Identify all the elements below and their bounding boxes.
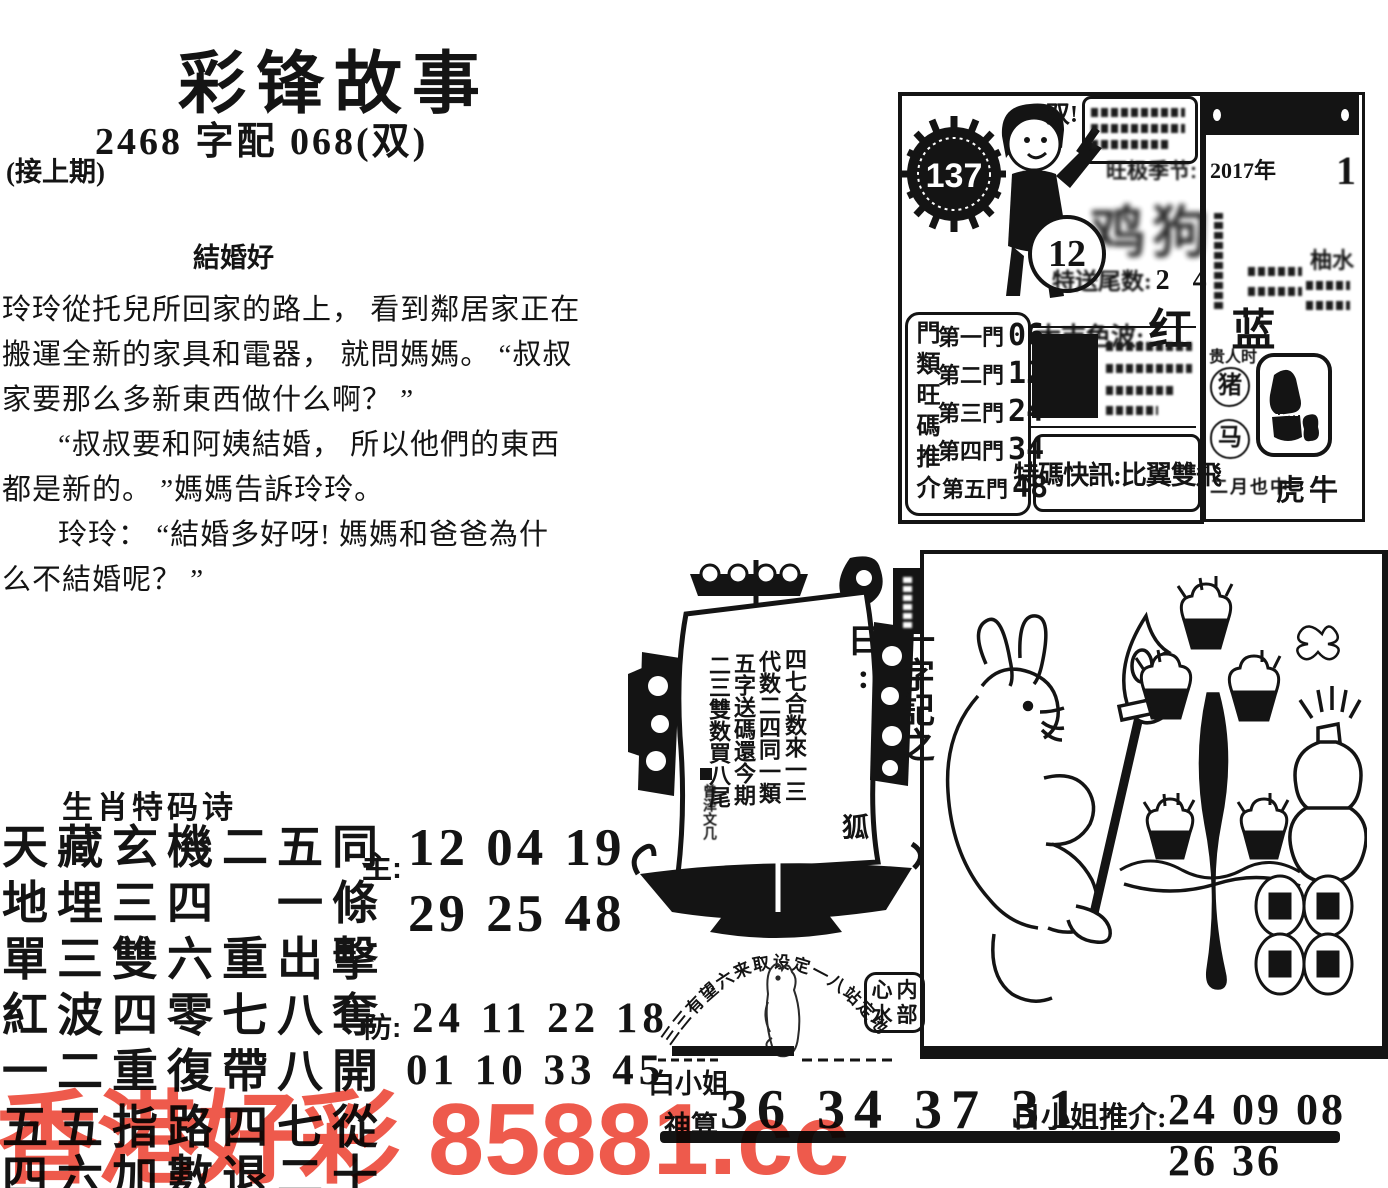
story-line: “叔叔要和阿姨結婚， 所以他們的東西 [58,423,560,468]
story-title: 結婚好 [193,236,274,275]
main-picks-label: 主: [362,843,402,887]
poem-line: 地埋三四 一條 [2,876,387,931]
season-zodiac: 鸡狗 [1090,188,1214,269]
gate-label: 第三門 [938,401,1004,426]
poem-line: 單三雙六重出擊 [2,932,387,987]
story-line: 都是新的。 ”媽媽告訴玲玲。 [2,468,384,513]
main-picks-row: 12 04 19 [408,818,626,878]
stamp-char: 部 [895,1003,919,1027]
gate-label: 第五門 [942,477,1008,502]
calendar-binder [1203,95,1359,135]
special-flash-box: 特碼快訊:比翼雙飛 [1033,434,1201,512]
calendar-year: 2017年 [1210,153,1276,185]
tail-row: 特送尾数: 2 4 [1052,262,1215,297]
shout-text: 双! [1046,94,1078,129]
rabbit-offering-icon [924,554,1367,1029]
gate-label: 第二門 [938,363,1004,388]
calendar-right-note: 柚水 [1310,243,1354,275]
recommend-label: 日小姐推介: [1012,1094,1167,1136]
season-label: 旺极季节: [1106,155,1197,185]
gourd-vase-icon [1290,686,1366,882]
gate-row: 第三門 24 [938,394,1044,429]
continued-note: (接上期) [6,150,105,189]
watermark-text: 香港好彩 85881.cc [0,1058,849,1188]
calendar-bottom-zodiac: 虎牛 [1276,467,1342,509]
scroll-signature: 曾泽文几 [698,784,718,854]
newspaper-page: 彩锋故事 2468 字配 068(双) (接上期) 結婚好 玲玲從托兒所回家的路… [0,0,1388,1188]
gate-label: 第四門 [938,439,1004,464]
story-line: 玲玲從托兒所回家的路上， 看到鄰居家正在 [2,288,580,333]
insider-stamp: 心 内 水 部 [864,972,925,1033]
black-square [1032,334,1098,418]
side-plaque [893,568,923,634]
signature-mark [700,768,712,780]
scroll-answer: 狐 [842,806,869,845]
guard-picks-label: 防: [364,1006,401,1046]
coins-icon [1256,876,1352,994]
poem-line: 天藏玄機二五同 [2,820,387,875]
calendar-zodiac-pig: 猪 [1210,367,1250,407]
number-pairing: 2468 字配 068(双) [95,110,428,165]
story-line: 搬運全新的家具和電器， 就問媽媽。 “叔叔 [2,333,572,378]
divider-bar [672,1046,794,1056]
gate-row: 第二門 12 [938,356,1044,391]
gate-label: 第一門 [938,325,1004,350]
poem-line: 紅波四零七八奪 [2,988,387,1043]
stamp-char: 水 [870,1003,894,1027]
speech-bubble [1082,96,1198,164]
guard-picks-row: 24 11 22 18 [412,994,669,1043]
calendar-zodiac-horse: 马 [1210,419,1250,459]
calendar-day: 1 [1336,147,1356,194]
calendar: 2017年 1 柚水 贵人时 猪 马 二月也中 虎牛 [1203,92,1365,522]
story-line: 家要那么多新東西做什么啊？ ” [2,378,414,423]
fox-sketch-icon [765,964,799,1056]
calendar-time-note: 贵人时 [1209,343,1257,367]
tail-label: 特送尾数: [1052,269,1152,294]
stamp-char: 心 [870,978,894,1002]
story-line: 玲玲： “結婚多好呀! 媽媽和爸爸為什 [58,513,549,558]
note-panel [1030,326,1196,428]
gate-row: 第一門 06 [938,318,1044,353]
stamp-char: 内 [895,978,919,1002]
arc-motto-text: 三三有望六来取设定一八站定地 [658,953,893,1048]
picture-box [920,550,1388,1059]
svg-text:三三有望六来取设定一八站定地: 三三有望六来取设定一八站定地 [658,953,893,1048]
butterfly-icon [1297,626,1338,659]
story-line: 么不結婚呢？ ” [2,558,204,603]
main-picks-row: 29 25 48 [408,884,626,944]
calendar-animal-stamp-icon [1256,353,1332,457]
